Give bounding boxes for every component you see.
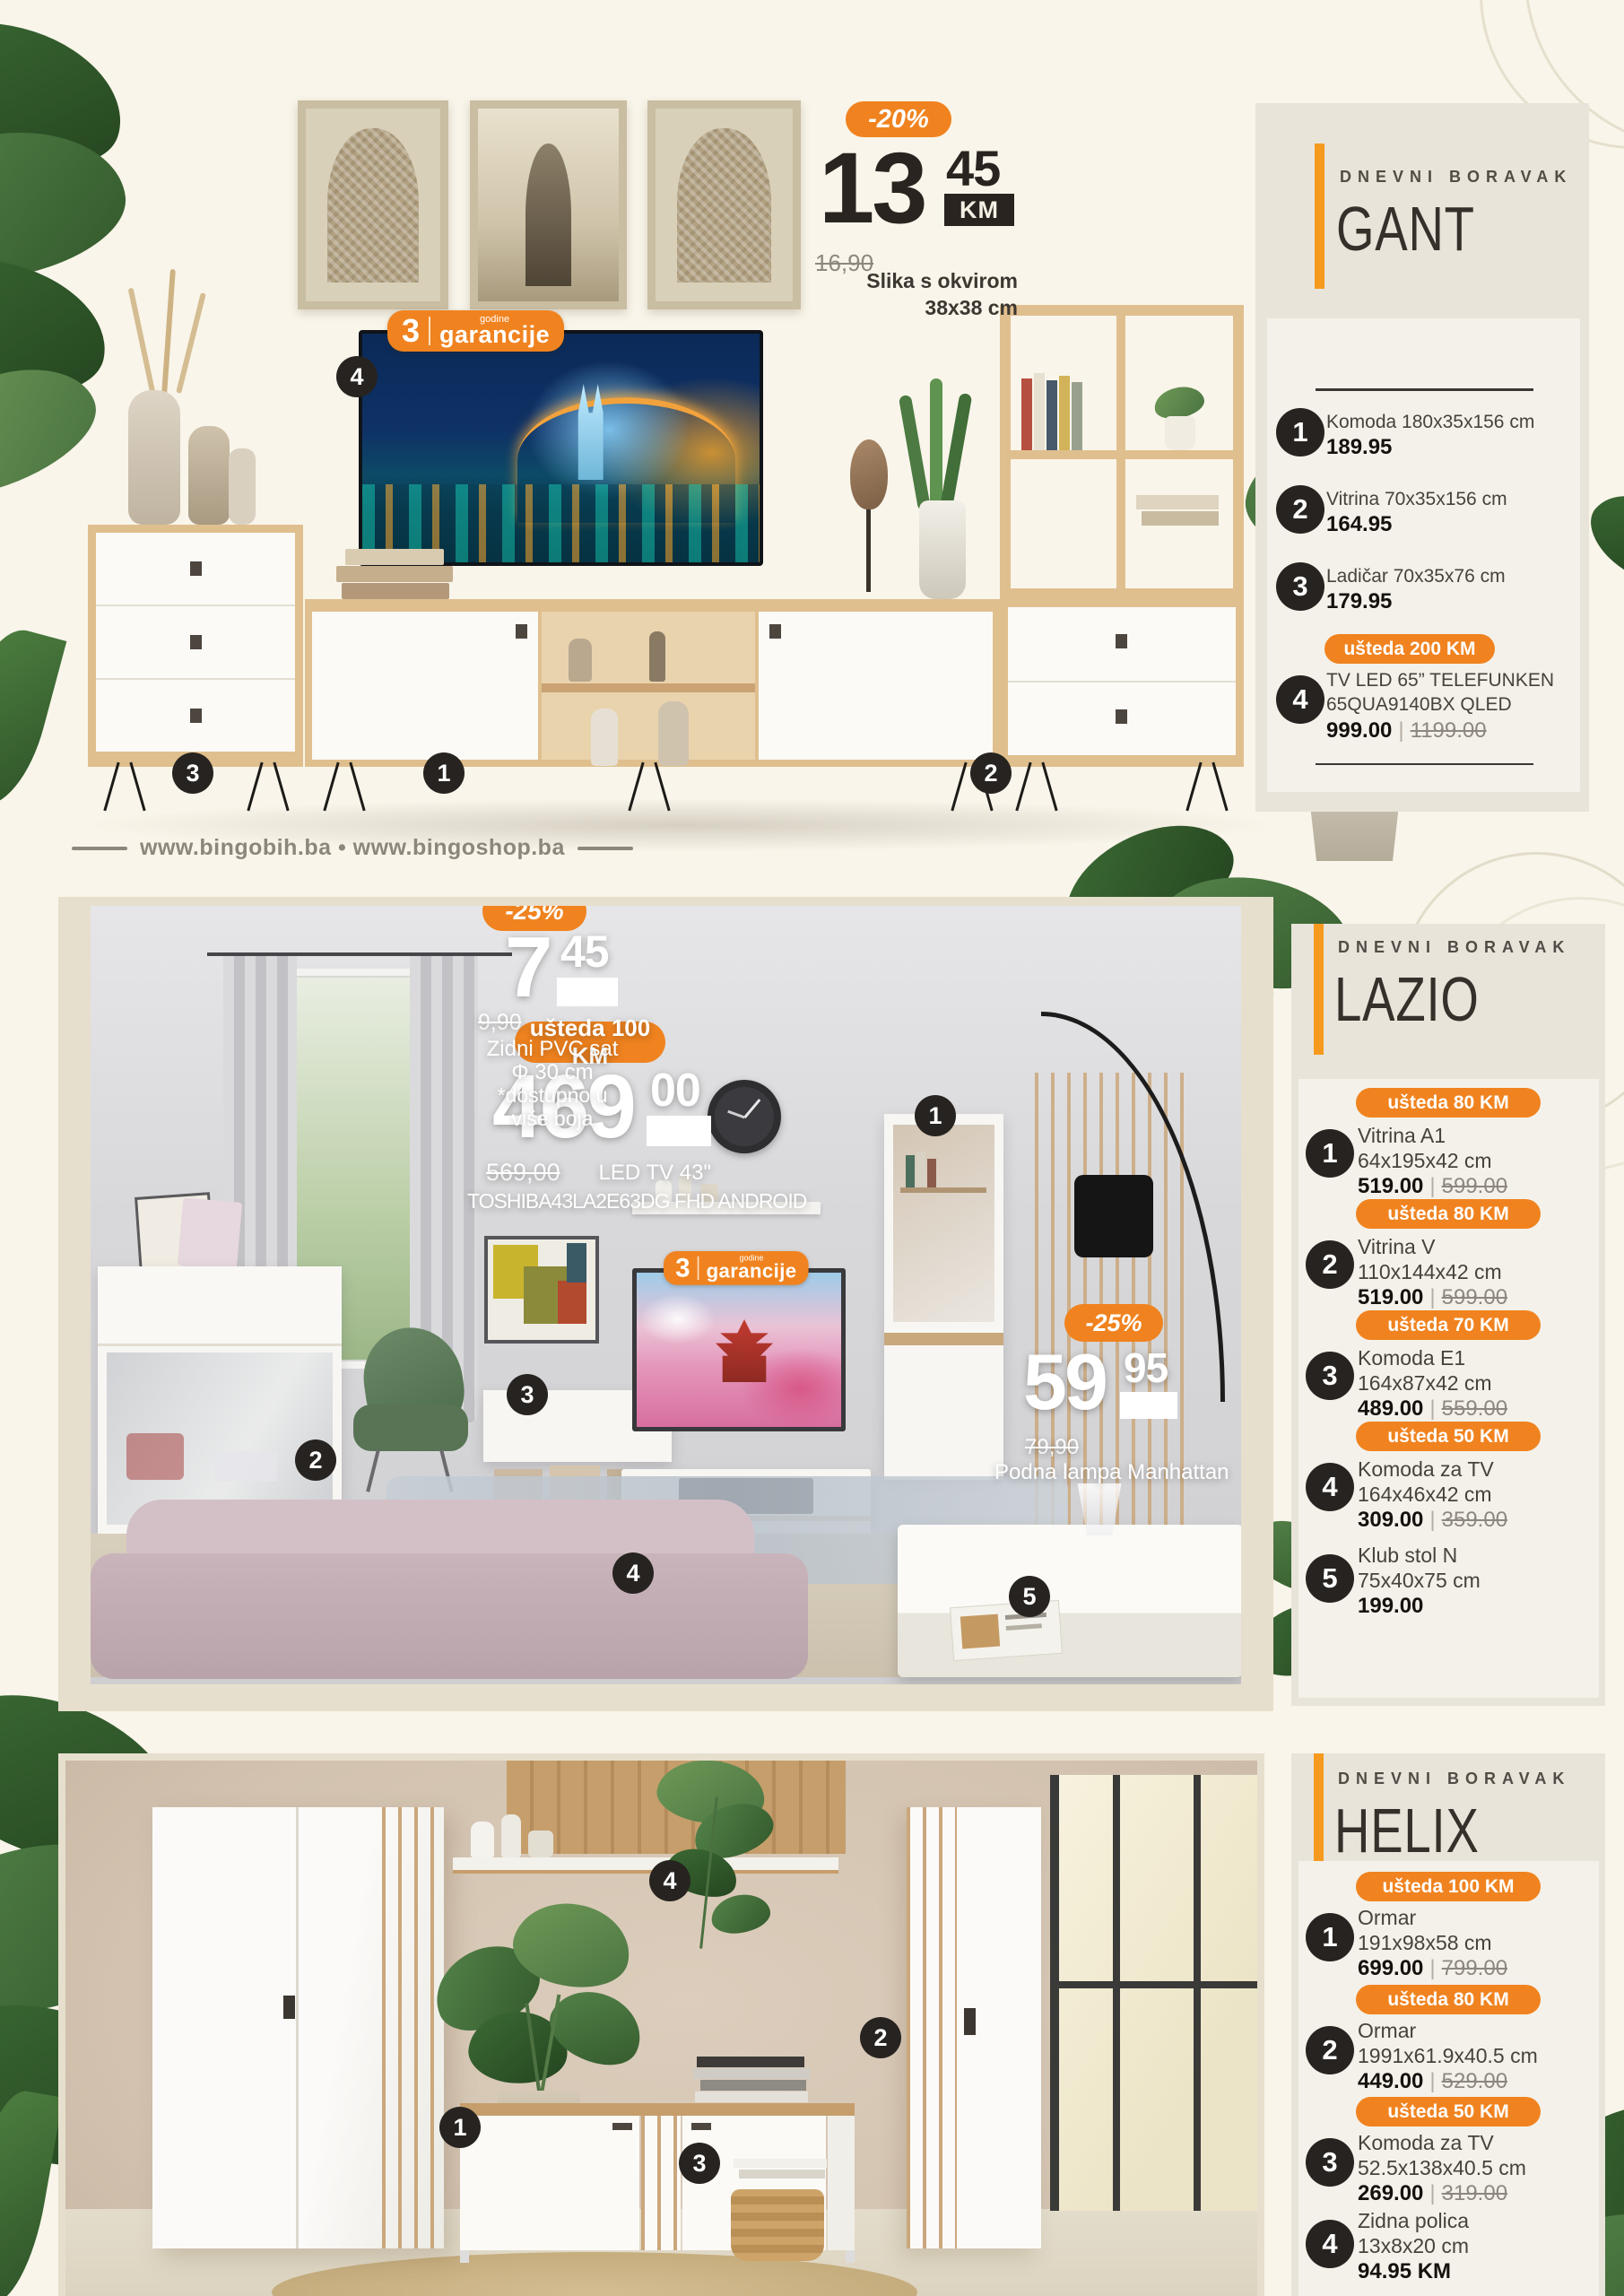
savings-badge: ušteda 80 KM (1356, 1088, 1541, 1118)
lazio-product-card: ušteda 80 KM 1 Vitrina A1 64x195x42 cm 5… (1298, 1079, 1599, 1698)
wardrobe-left (152, 1807, 444, 2248)
item-number: 1 (1276, 408, 1324, 457)
offer-product-dims: 38x38 cm (847, 296, 1018, 320)
item-name: Vitrina V (1358, 1235, 1436, 1259)
item-price: 999.00|1199.00 (1326, 718, 1487, 744)
helix-eyebrow: DNEVNI BORAVAK (1338, 1770, 1570, 1788)
scene-marker-2: 2 (970, 752, 1012, 794)
vitrina-v-cabinet (98, 1266, 342, 1535)
offer-name: LED TV 43" (566, 1161, 711, 1186)
open-shelf-niche (542, 612, 755, 760)
km-box: KM (557, 978, 618, 1006)
item-number: 3 (1306, 2138, 1354, 2187)
item-name: Vitrina 70x35x156 cm (1326, 489, 1507, 510)
vitrina-a1-cabinet (884, 1114, 1003, 1480)
savings-badge: ušteda 80 KM (1356, 1199, 1541, 1229)
item-name: Komoda za TV (1358, 1457, 1494, 1482)
savings-badge: ušteda 50 KM (1356, 1422, 1541, 1451)
lazio-room: 3 godinegarancije (91, 906, 1241, 1684)
item-number: 2 (1306, 2026, 1354, 2074)
scene-marker-1: 1 (439, 2107, 481, 2148)
lazio-panel: DNEVNI BORAVAK LAZIO ušteda 80 KM 1 Vitr… (1291, 924, 1605, 1706)
offer-model: TOSHIBA43LA2E63DG FHD ANDROID (467, 1189, 806, 1213)
item-name: Komoda E1 (1358, 1346, 1465, 1370)
savings-badge: ušteda 200 KM (1324, 634, 1495, 664)
savings-badge: ušteda 50 KM (1356, 2097, 1541, 2126)
shelf-vases (471, 1814, 596, 1857)
offer-note-2: više boja (476, 1107, 629, 1131)
gant-product-card: 1 Komoda 180x35x156 cm 189.95 2 Vitrina … (1267, 318, 1580, 792)
accent-bar (1315, 143, 1324, 289)
item-dims: 75x40x75 cm (1358, 1569, 1481, 1593)
item-price: 449.00|529.00 (1358, 2069, 1507, 2094)
item-name: Ormar (1358, 2019, 1416, 2043)
wall-picture-frame (298, 100, 448, 309)
item-name: Ladičar 70x35x76 cm (1326, 566, 1506, 587)
mask-sculpture (843, 439, 897, 599)
offer-name: Zidni PVC sat (476, 1037, 629, 1062)
old-price: 79,90 (1025, 1435, 1079, 1460)
gant-room-scene: 3 godinegarancije (54, 54, 1246, 861)
item-price: 269.00|319.00 (1358, 2181, 1507, 2206)
pampas-grass-decor (103, 341, 265, 525)
item-price: 179.95 (1326, 589, 1392, 614)
lazio-eyebrow: DNEVNI BORAVAK (1338, 938, 1570, 957)
ladicar-unit (88, 525, 303, 767)
abstract-art-frame (484, 1236, 599, 1344)
old-price: 9,90 (478, 1010, 522, 1036)
leaning-art (137, 1191, 245, 1268)
item-number: 3 (1276, 562, 1324, 611)
sofa (91, 1500, 808, 1679)
item-name: Komoda 180x35x156 cm (1326, 412, 1534, 433)
scene-marker-4: 4 (336, 356, 378, 397)
item-dims: 110x144x42 cm (1358, 1260, 1502, 1284)
wall-clock (708, 1080, 781, 1153)
garancije-years: 3 (402, 312, 420, 350)
decor-books (336, 549, 462, 599)
scene-marker-3: 3 (679, 2143, 720, 2184)
item-number: 2 (1276, 485, 1324, 534)
item-number: 2 (1306, 1240, 1354, 1289)
gant-panel: DNEVNI BORAVAK GANT 1 Komoda 180x35x156 … (1255, 103, 1589, 812)
scene-marker-2: 2 (295, 1439, 336, 1481)
vitrina-unit (1000, 599, 1244, 767)
picture-arch-art (677, 128, 770, 283)
green-armchair (346, 1327, 481, 1498)
item-dims: 164x87x42 cm (1358, 1371, 1492, 1396)
item-name: Vitrina A1 (1358, 1124, 1446, 1148)
leaf-decoration (0, 2085, 63, 2296)
item-price: 164.95 (1326, 512, 1392, 537)
item-price: 519.00|599.00 (1358, 1174, 1507, 1199)
garancije-badge: 3 godinegarancije (664, 1251, 809, 1285)
item-name: Komoda za TV (1358, 2131, 1494, 2155)
item-price: 519.00|599.00 (1358, 1285, 1507, 1310)
helix-room-photo: 4 2 1 3 (58, 1753, 1264, 2296)
toshiba-tv (632, 1268, 846, 1431)
divider (578, 847, 633, 850)
garancije-badge: 3 godinegarancije (387, 310, 564, 352)
item-name: Ormar (1358, 1906, 1416, 1930)
wall-picture-frame (647, 100, 801, 309)
scene-marker-3: 3 (172, 752, 213, 794)
website-links: www.bingobih.ba • www.bingoshop.ba (72, 835, 633, 861)
lazio-room-photo: 3 godinegarancije (58, 897, 1273, 1711)
offer-price-dec: 00 (650, 1071, 700, 1110)
helix-panel: DNEVNI BORAVAK HELIX ušteda 100 KM 1 Orm… (1291, 1753, 1605, 2296)
savings-badge: ušteda 80 KM (1356, 1985, 1541, 2014)
window (1050, 1775, 1257, 2211)
shelf-plant (1145, 387, 1217, 450)
item-dims: 191x98x58 cm (1358, 1931, 1492, 1955)
item-number: 4 (1306, 2220, 1354, 2268)
scene-marker-3: 3 (507, 1374, 548, 1415)
item-name: TV LED 65” TELEFUNKEN (1326, 670, 1554, 691)
savings-badge: ušteda 100 KM (1356, 1872, 1541, 1901)
item-number: 4 (1276, 675, 1324, 724)
offer-price-dec: 95 (1124, 1351, 1168, 1386)
picture-corridor-art (525, 143, 570, 286)
item-price: 189.95 (1326, 435, 1392, 460)
item-dims: 164x46x42 cm (1358, 1483, 1492, 1507)
picture-arch-art (327, 128, 419, 283)
tv-pagoda-graphic (716, 1319, 773, 1382)
item-name: Zidna polica (1358, 2209, 1469, 2233)
rule (1316, 763, 1533, 765)
item-price: 489.00|559.00 (1358, 1396, 1507, 1422)
item-name-line2: 65QUA9140BX QLED (1326, 694, 1512, 716)
offer-note-1: *dostupno u (476, 1083, 629, 1108)
cube-shelf (1000, 305, 1244, 599)
scene-marker-1: 1 (423, 752, 465, 794)
item-number: 1 (1306, 1913, 1354, 1961)
scene-marker-2: 2 (860, 2017, 901, 2058)
savings-badge: ušteda 70 KM (1356, 1310, 1541, 1340)
discount-badge: -25% (1064, 1304, 1163, 1342)
gant-eyebrow: DNEVNI BORAVAK (1340, 168, 1572, 187)
rule (1316, 388, 1533, 391)
coffee-table (898, 1525, 1241, 1677)
wardrobe-right (907, 1807, 1041, 2248)
item-dims: 52.5x138x40.5 cm (1358, 2156, 1526, 2180)
badge-divider (429, 317, 430, 345)
item-number: 4 (1306, 1463, 1354, 1511)
accent-bar (1314, 924, 1324, 1055)
item-price: 699.00|799.00 (1358, 1956, 1507, 1981)
stacked-books (1136, 495, 1222, 531)
telefunken-tv (359, 330, 763, 566)
helix-title: HELIX (1334, 1795, 1480, 1866)
item-dims: 64x195x42 cm (1358, 1149, 1492, 1173)
offer-price-int: 59 (1023, 1349, 1106, 1416)
gant-title: GANT (1336, 193, 1475, 265)
komoda-sideboard (305, 599, 1000, 767)
km-box: KM (1120, 1392, 1177, 1419)
km-box: KM (944, 194, 1014, 226)
old-price: 569,00 (486, 1159, 560, 1187)
floor-lamp-shade (1074, 1175, 1153, 1257)
snake-plant (892, 386, 991, 599)
shelf-books (734, 2155, 841, 2182)
offer-price-dec: 45 (560, 933, 609, 971)
item-number: 3 (1306, 1352, 1354, 1400)
wicker-basket (731, 2189, 824, 2261)
wall-picture-frame (470, 100, 627, 309)
item-name: Klub stol N (1358, 1544, 1457, 1568)
catalog-page: 3 godinegarancije (0, 0, 1624, 2296)
helix-room: 4 2 1 3 (65, 1761, 1257, 2296)
offer-name: Podna lampa Manhattan (994, 1460, 1237, 1485)
website-urls[interactable]: www.bingobih.ba • www.bingoshop.ba (140, 835, 565, 861)
scene-marker-4: 4 (612, 1552, 654, 1594)
offer-dims: Φ 30 cm (476, 1060, 629, 1085)
open-shelf (828, 2116, 855, 2250)
garancije-bottom-label: garancije (439, 323, 550, 347)
item-dims: 1991x61.9x40.5 cm (1358, 2044, 1538, 2068)
offer-price-int: 7 (505, 931, 550, 1004)
item-price: 94.95 KM (1358, 2259, 1451, 2284)
divider (72, 847, 127, 850)
scene-marker-5: 5 (1009, 1576, 1050, 1617)
lazio-title: LAZIO (1334, 963, 1480, 1035)
scene-marker-4: 4 (649, 1860, 690, 1901)
item-number: 1 (1306, 1129, 1354, 1178)
offer-product-name: Slika s okvirom (847, 269, 1018, 293)
item-price: 199.00 (1358, 1594, 1423, 1619)
item-number: 5 (1306, 1554, 1354, 1603)
book-spines (1021, 371, 1111, 450)
item-dims: 13x8x20 cm (1358, 2234, 1469, 2258)
km-box: KM (647, 1116, 711, 1146)
helix-product-card: ušteda 100 KM 1 Ormar 191x98x58 cm 699.0… (1298, 1861, 1599, 2296)
scene-marker-1: 1 (915, 1095, 956, 1136)
offer-price-dec: 45 (946, 147, 1000, 190)
item-price: 309.00|359.00 (1358, 1508, 1507, 1533)
offer-price-int: 13 (819, 145, 925, 230)
stacked-books (693, 2057, 819, 2103)
